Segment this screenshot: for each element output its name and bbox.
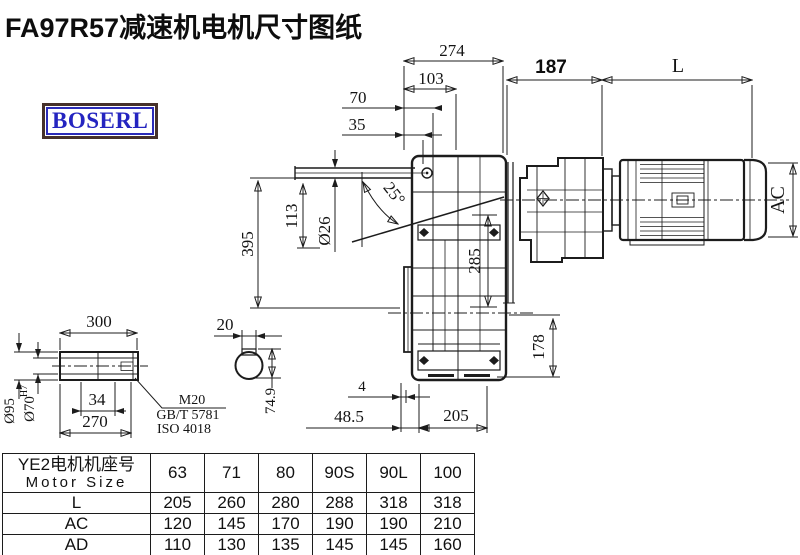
- dim-270-label: 270: [82, 412, 108, 431]
- table-cell: 260: [205, 493, 259, 514]
- thread-standard-iso-label: ISO 4018: [157, 422, 211, 437]
- table-row-AD: AD 110 130 135 145 145 160: [3, 535, 475, 555]
- table-cell: 110: [151, 535, 205, 555]
- dim-20: 20: [214, 315, 282, 349]
- thread-size-label: M20: [179, 393, 205, 408]
- dim-20-label: 20: [217, 315, 234, 334]
- technical-drawing: 274 103 70 35: [0, 0, 800, 450]
- gearbox-side-view: [404, 156, 506, 380]
- shaft-end-view: [236, 349, 263, 379]
- dim-48-5: 48.5: [306, 384, 438, 433]
- table-cell: 130: [205, 535, 259, 555]
- table-cell: 190: [367, 514, 421, 535]
- table-row-L: L 205 260 280 288 318 318: [3, 493, 475, 514]
- dim-35-label: 35: [349, 115, 366, 134]
- dim-70-label: 70: [350, 88, 367, 107]
- dim-103: 103: [404, 69, 456, 150]
- dim-70h7-tolerance-label: H7: [19, 385, 30, 397]
- dim-113-label: 113: [282, 204, 301, 229]
- dim-70h7-label: Ø70: [22, 396, 38, 422]
- table-cell: 280: [259, 493, 313, 514]
- table-cell: 135: [259, 535, 313, 555]
- dim-274-label: 274: [439, 41, 465, 60]
- dim-4-label: 4: [358, 379, 366, 395]
- dim-AC: AC: [767, 163, 798, 237]
- dim-285-label: 285: [465, 248, 484, 274]
- dim-AC-label: AC: [767, 186, 789, 214]
- table-cell: 145: [367, 535, 421, 555]
- dim-angle-25: 25°: [362, 172, 409, 247]
- dim-34-label: 34: [89, 390, 107, 409]
- table-header-row: YE2电机机座号 Motor Size 63 71 80 90S 90L 100: [3, 454, 475, 493]
- thread-standard-gb-label: GB/T 5781: [156, 408, 219, 423]
- dim-L: L: [602, 55, 752, 158]
- dim-34: 34: [72, 382, 126, 416]
- table-header-en: Motor Size: [3, 474, 150, 491]
- table-cell: 190: [313, 514, 367, 535]
- column-header: 71: [205, 454, 259, 493]
- dim-274: 274: [404, 41, 503, 153]
- dim-74-9: 74.9: [252, 349, 281, 414]
- dim-300-label: 300: [86, 312, 112, 331]
- column-header: 100: [421, 454, 475, 493]
- dim-205: 205: [419, 386, 487, 433]
- dim-300: 300: [60, 312, 137, 350]
- column-header: 63: [151, 454, 205, 493]
- table-cell: 145: [205, 514, 259, 535]
- column-header: 90L: [367, 454, 421, 493]
- shaft-detail-view: [52, 352, 148, 380]
- table-cell: 120: [151, 514, 205, 535]
- dim-diameter-70h7: Ø70 H7: [19, 342, 58, 422]
- dim-25-label: 25°: [380, 178, 410, 208]
- dim-L-label: L: [672, 55, 684, 77]
- r57-gear-unit: [503, 158, 620, 303]
- table-header-cn: YE2电机机座号: [3, 455, 150, 474]
- table-cell: 160: [421, 535, 475, 555]
- dim-74-9-label: 74.9: [263, 388, 279, 414]
- dim-205-label: 205: [443, 406, 469, 425]
- table-cell: 318: [367, 493, 421, 514]
- table-row-AC: AC 120 145 170 190 190 210: [3, 514, 475, 535]
- table-cell: 145: [313, 535, 367, 555]
- dim-187: 187: [507, 57, 602, 156]
- table-header-motor-size: YE2电机机座号 Motor Size: [3, 454, 151, 493]
- table-cell: 288: [313, 493, 367, 514]
- row-label: AC: [3, 514, 151, 535]
- dim-395-label: 395: [238, 231, 257, 257]
- row-label: L: [3, 493, 151, 514]
- column-header: 90S: [313, 454, 367, 493]
- dim-diameter-26: Ø26: [315, 150, 338, 252]
- dim-103-label: 103: [418, 69, 444, 88]
- dim-285: 285: [465, 215, 497, 307]
- dim-26-label: Ø26: [315, 216, 334, 245]
- dim-48-5-label: 48.5: [334, 407, 364, 426]
- table-cell: 205: [151, 493, 205, 514]
- motor-view: [620, 160, 766, 245]
- motor-size-table: YE2电机机座号 Motor Size 63 71 80 90S 90L 100…: [2, 453, 475, 555]
- table-cell: 318: [421, 493, 475, 514]
- drawing-page: FA97R57减速机电机尺寸图纸 BOSERL: [0, 0, 800, 555]
- dim-187-label: 187: [535, 57, 567, 78]
- table-cell: 170: [259, 514, 313, 535]
- column-header: 80: [259, 454, 313, 493]
- thread-callout: M20 GB/T 5781 ISO 4018: [135, 378, 226, 437]
- dim-178-label: 178: [529, 334, 548, 360]
- table-cell: 210: [421, 514, 475, 535]
- dim-95-label: Ø95: [2, 398, 18, 424]
- row-label: AD: [3, 535, 151, 555]
